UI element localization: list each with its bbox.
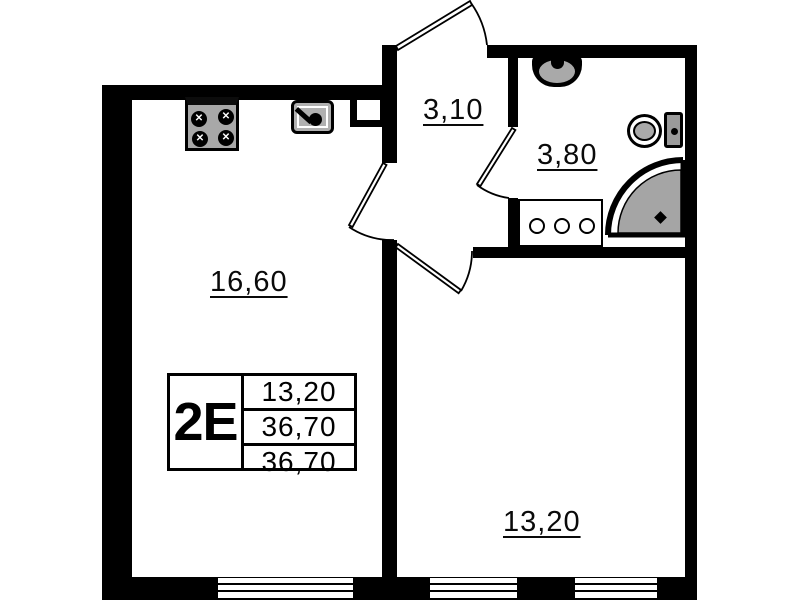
wall-top-living xyxy=(102,85,380,100)
bathroom-sink-icon xyxy=(532,56,582,87)
kitchen-sink-faucet-icon xyxy=(309,113,322,126)
vent-shaft-opening xyxy=(357,100,380,120)
bedroom-door-leaf xyxy=(396,244,461,293)
wall-top-right xyxy=(487,45,697,58)
wall-bathroom-left-lower xyxy=(508,198,518,247)
toilet-icon xyxy=(627,114,662,148)
bedroom-area-label: 13,20 xyxy=(503,506,581,539)
unit-area-row-1: 13,20 xyxy=(244,376,354,408)
bathroom-area-label: 3,80 xyxy=(537,139,597,172)
wall-left xyxy=(102,85,132,600)
window-bedroom-right xyxy=(575,578,657,598)
hallway-area-label: 3,10 xyxy=(423,94,483,127)
wall-bathroom-bottom xyxy=(473,247,697,258)
entrance-door-arc xyxy=(471,3,487,45)
wall-center-bottom xyxy=(382,240,397,577)
stove-icon: ✕ ✕ ✕ ✕ xyxy=(185,97,239,151)
entrance-door-leaf xyxy=(396,1,472,50)
unit-area-row-2: 36,70 xyxy=(244,408,354,443)
stove-burner-icon: ✕ xyxy=(191,111,207,127)
kitchen-sink-icon xyxy=(291,100,334,134)
bathroom-door-leaf xyxy=(477,128,515,186)
shower-tray xyxy=(618,170,681,233)
unit-info-table: 2Е 13,20 36,70 36,70 xyxy=(167,373,357,471)
vent-shaft xyxy=(350,85,397,127)
stove-burner-icon: ✕ xyxy=(192,131,208,147)
living-room-area-label: 16,60 xyxy=(210,266,288,299)
floor-plan: ✕ ✕ ✕ ✕ 16,60 3,10 3,80 13,20 2Е xyxy=(0,0,799,600)
shower-icon xyxy=(604,156,686,238)
washing-machine-icon xyxy=(518,199,603,247)
living-door-leaf xyxy=(349,163,387,227)
wall-right xyxy=(685,45,697,600)
toilet-tank-icon xyxy=(664,112,683,148)
bedroom-door-arc xyxy=(461,251,472,291)
window-bedroom-left xyxy=(430,578,517,598)
toilet-flush-button xyxy=(671,128,678,135)
unit-area-rows: 13,20 36,70 36,70 xyxy=(244,376,354,468)
unit-type-label: 2Е xyxy=(170,376,244,468)
toilet-bowl-inner xyxy=(633,121,656,141)
washer-knob-icon xyxy=(529,218,545,234)
washer-knob-icon xyxy=(554,218,570,234)
unit-area-row-3: 36,70 xyxy=(244,443,354,478)
wall-bathroom-left-upper xyxy=(508,57,518,127)
bathroom-door-arc xyxy=(477,185,509,198)
living-door-arc xyxy=(349,227,394,240)
stove-burner-icon: ✕ xyxy=(218,109,234,125)
stove-burner-icon: ✕ xyxy=(218,130,234,146)
washer-knob-icon xyxy=(579,218,595,234)
window-living-room xyxy=(218,578,353,598)
